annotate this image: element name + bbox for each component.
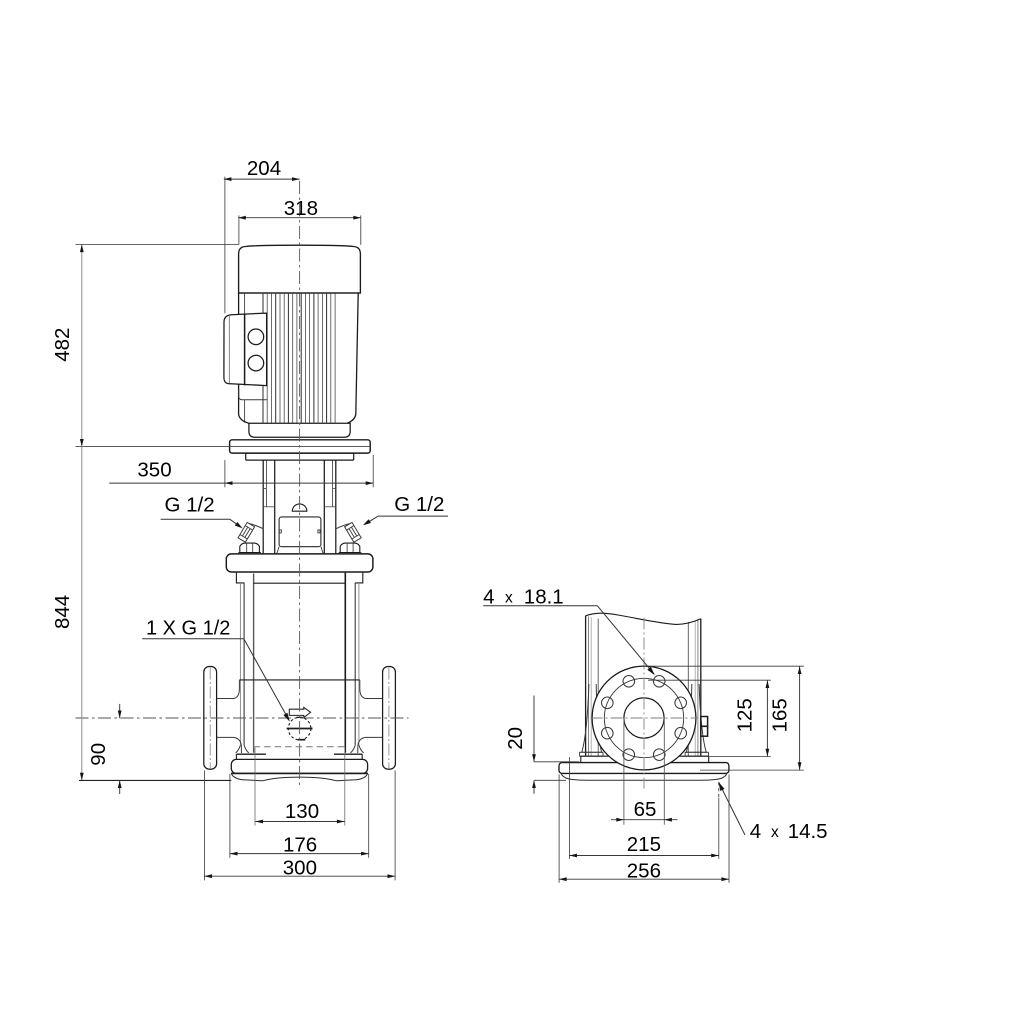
svg-text:204: 204: [247, 157, 281, 180]
svg-text:90: 90: [87, 743, 110, 766]
svg-text:G 1/2: G 1/2: [394, 493, 444, 516]
svg-text:1 X G 1/2: 1 X G 1/2: [146, 617, 231, 639]
svg-text:65: 65: [634, 798, 657, 821]
svg-text:256: 256: [627, 860, 661, 883]
svg-text:844: 844: [51, 595, 74, 629]
svg-text:4: 4: [483, 585, 494, 608]
svg-text:300: 300: [283, 857, 317, 880]
svg-text:318: 318: [284, 197, 318, 220]
svg-text:130: 130: [285, 800, 319, 823]
svg-text:x: x: [771, 824, 779, 841]
svg-text:14.5: 14.5: [788, 820, 828, 843]
svg-text:4: 4: [750, 820, 761, 843]
svg-text:20: 20: [504, 727, 527, 750]
svg-text:165: 165: [769, 698, 792, 732]
svg-text:350: 350: [137, 459, 171, 482]
svg-text:x: x: [505, 590, 513, 607]
svg-text:18.1: 18.1: [524, 585, 564, 608]
svg-text:G 1/2: G 1/2: [165, 494, 215, 517]
svg-text:215: 215: [627, 833, 661, 856]
svg-text:482: 482: [51, 328, 74, 362]
svg-text:125: 125: [734, 698, 757, 732]
svg-text:176: 176: [283, 833, 317, 856]
